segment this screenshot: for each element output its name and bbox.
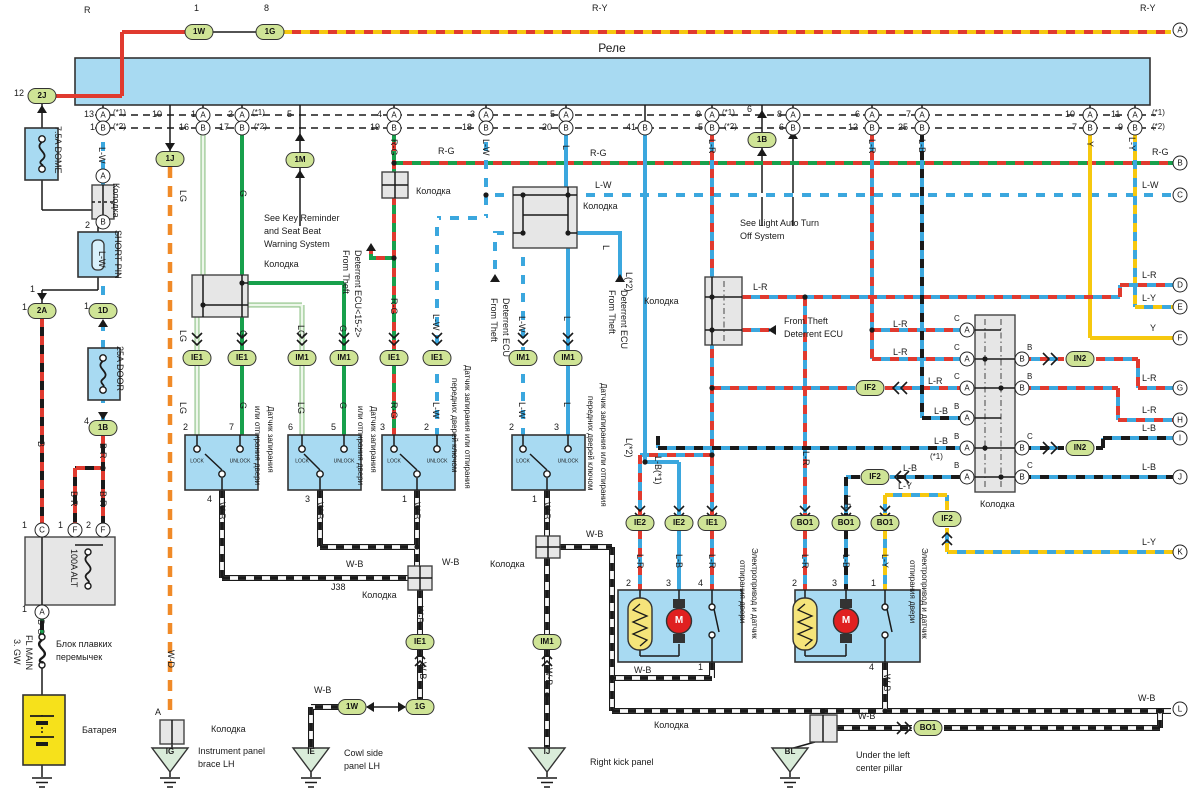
label-3: 3 <box>666 579 671 588</box>
label-25a-door: 25A DOOR <box>115 346 124 391</box>
label-перемычек: перемычек <box>56 653 102 662</box>
label-lock: LOCK <box>190 460 204 465</box>
label-l-r: L-R <box>1142 271 1157 280</box>
label-или-отпирания-двери: или отпирания двери <box>356 406 364 485</box>
label-l-b: L-B <box>903 464 917 473</box>
label-3: 3 <box>305 495 310 504</box>
label-see-light-auto-turn: See Light Auto Turn <box>740 219 819 228</box>
label-r: R <box>84 6 91 15</box>
label-l-w: L-W <box>97 251 106 268</box>
label-l-y: L-Y <box>1142 294 1156 303</box>
label-l-b: L-B <box>841 554 850 568</box>
pin-circle-b: B <box>638 121 653 136</box>
label-l-y: L-Y <box>1142 538 1156 547</box>
pin-circle-a: A <box>35 605 50 620</box>
pin-circle-b: B <box>479 121 494 136</box>
label-1: 1 <box>22 521 27 530</box>
connector-1b: 1B <box>748 132 777 148</box>
label-100a-alt: 100A ALT <box>69 549 78 587</box>
label-2-: (*2) <box>1152 123 1165 131</box>
label-1: 1 <box>402 495 407 504</box>
label-l-w: L-W <box>431 402 440 419</box>
connector-ie1: IE1 <box>183 350 212 366</box>
label-1-: (*1) <box>113 109 126 117</box>
label-8: 8 <box>264 4 269 13</box>
label-6: 6 <box>855 110 860 119</box>
pin-circle-b: B <box>96 215 111 230</box>
label-deterrent-ecu: Deterrent ECU <box>784 330 843 339</box>
label-panel-lh: panel LH <box>344 762 380 771</box>
label-l-w: L-W <box>517 316 526 333</box>
label-r-g: R-G <box>389 402 398 419</box>
connector-bo1: BO1 <box>914 720 943 736</box>
label-1: 1 <box>194 4 199 13</box>
label-lg: LG <box>178 330 187 342</box>
label-w-b: W-B <box>1138 694 1155 703</box>
label-2-: (*2) <box>113 123 126 131</box>
label-and-seat-beat: and Seat Beat <box>264 227 321 236</box>
label-2: 2 <box>183 423 188 432</box>
label-w-b: W-B <box>544 668 553 685</box>
label-1-: (*1) <box>252 109 265 117</box>
label-fl-main: FL MAIN <box>24 635 33 670</box>
connector-ie1: IE1 <box>380 350 409 366</box>
label-g: G <box>238 402 247 409</box>
connector-bo1: BO1 <box>871 515 900 531</box>
label-1: 1 <box>698 663 703 672</box>
label-l-r: L-R <box>1142 406 1157 415</box>
label-w-b: W-B <box>415 606 424 623</box>
label-колодка: Колодка <box>362 591 397 600</box>
label-2-: (*2) <box>254 123 267 131</box>
label-l-w: L-W <box>97 147 106 164</box>
pin-circle-b: B <box>705 121 720 136</box>
label-колодка: Колодка <box>111 183 120 218</box>
label-l-r: L-R <box>928 377 943 386</box>
pin-circle-b: B <box>865 121 880 136</box>
connector-im1: IM1 <box>509 350 538 366</box>
label-deterrent-ecu: Deterrent ECU <box>501 298 510 357</box>
label-7: 7 <box>1072 123 1077 132</box>
pin-circle-a: A <box>960 381 975 396</box>
pin-circle-e: E <box>1173 300 1188 315</box>
connector-1j: 1J <box>156 151 185 167</box>
label-l-r: L-R <box>753 283 768 292</box>
label-6: 6 <box>779 123 784 132</box>
label-center-pillar: center pillar <box>856 764 903 773</box>
label-r-g: R-G <box>590 149 607 158</box>
label-w-b: W-B <box>315 502 324 519</box>
relay-title: Реле <box>598 42 625 54</box>
label-1: 1 <box>532 495 537 504</box>
wiring-diagram-page: Реле R18R-YR-Y12(*1)(*2)13(*1)1(*2)10116… <box>0 0 1200 800</box>
label-l: L <box>562 402 571 407</box>
connector-ie2: IE2 <box>626 515 655 531</box>
label-short-pin: SHORT PIN <box>113 230 122 279</box>
connector-1d: 1D <box>89 303 118 319</box>
label-колодка: Колодка <box>644 297 679 306</box>
label-9: 9 <box>696 110 701 119</box>
label-l-r: L-R <box>707 139 716 154</box>
label-y: Y <box>1085 141 1094 147</box>
label-батарея: Батарея <box>82 726 117 735</box>
label-3: 3 <box>470 110 475 119</box>
connector-im1: IM1 <box>288 350 317 366</box>
label-b: B <box>36 441 45 447</box>
label-y: Y <box>1150 324 1156 333</box>
label-cowl-side: Cowl side <box>344 749 383 758</box>
label-brace-lh: brace LH <box>198 760 235 769</box>
label-передних-дверей-ключом: передних дверей ключом <box>586 396 594 490</box>
label-l-w: L-W <box>481 139 490 156</box>
label-l-r: L-R <box>635 554 644 569</box>
connector-ie1: IE1 <box>698 515 727 531</box>
pin-circle-a: A <box>96 169 111 184</box>
label-m: M <box>675 616 683 626</box>
label-lock: LOCK <box>516 460 530 465</box>
label-w-b: W-B <box>418 662 427 679</box>
pin-circle-a: A <box>960 323 975 338</box>
label-l-b: L-B <box>1142 424 1156 433</box>
label-12: 12 <box>14 89 24 98</box>
label-w-b: W-B <box>586 530 603 539</box>
label-warning-system: Warning System <box>264 240 330 249</box>
label-w-b: W-B <box>634 666 651 675</box>
label-l: L <box>562 316 571 321</box>
connector-im1: IM1 <box>533 634 562 650</box>
connector-bo1: BO1 <box>791 515 820 531</box>
pin-circle-h: H <box>1173 413 1188 428</box>
label-колодка: Колодка <box>416 187 451 196</box>
connector-in2: IN2 <box>1066 351 1095 367</box>
label-16: 16 <box>179 123 189 132</box>
label-датчик-запирания: Датчик запирания <box>266 406 274 473</box>
label-l-r: L-R <box>893 348 908 357</box>
connector-if2: IF2 <box>933 511 962 527</box>
label-9: 9 <box>1118 123 1123 132</box>
label-12: 12 <box>848 123 858 132</box>
connector-ie1: IE1 <box>406 634 435 650</box>
label-c: C <box>954 344 960 352</box>
label-b: B <box>1027 344 1032 352</box>
label-w-b: W-B <box>442 558 459 567</box>
label-колодка: Колодка <box>654 721 689 730</box>
label-b-r: B-R <box>98 443 107 459</box>
label-bl: BL <box>785 748 796 756</box>
label-датчик-запирания-или-отпирания: Датчик запирания или отпирания <box>599 383 607 507</box>
label-see-key-reminder: See Key Reminder <box>264 214 340 223</box>
label-6: 6 <box>747 105 752 114</box>
pin-circle-a: A <box>960 441 975 456</box>
pin-circle-b: B <box>1128 121 1143 136</box>
label-5: 5 <box>698 123 703 132</box>
connector-2j: 2J <box>28 88 57 104</box>
label-2-: (*2) <box>724 123 737 131</box>
pin-circle-b: B <box>96 121 111 136</box>
label-unlock: UNLOCK <box>334 460 355 465</box>
pin-circle-b: B <box>559 121 574 136</box>
label-1-: (*1) <box>1152 109 1165 117</box>
connector-ie1: IE1 <box>423 350 452 366</box>
label-b: B <box>954 403 959 411</box>
label-11: 11 <box>1111 110 1120 119</box>
label-l: L <box>561 145 570 150</box>
label-5: 5 <box>550 110 555 119</box>
label-колодка: Колодка <box>211 725 246 734</box>
label-передних-дверей-ключом: передних дверей ключом <box>450 378 458 472</box>
label-1-: (*1) <box>722 109 735 117</box>
label-l-b: L-B <box>917 139 926 153</box>
label-l-2-: L(*2) <box>624 272 633 292</box>
label-отпирания-двери: отпирания двери <box>908 560 916 623</box>
label-2: 2 <box>424 423 429 432</box>
label-l: L <box>601 245 610 250</box>
label-w-b: W-B <box>217 502 226 519</box>
label-7-5a-dome: 7.5A DOME <box>53 126 62 174</box>
label-c: C <box>954 315 960 323</box>
label-l-b-1-: L-B(*1) <box>653 456 662 485</box>
pin-circle-b: B <box>1015 441 1030 456</box>
label-j38: J38 <box>331 583 346 592</box>
label-8: 8 <box>777 110 782 119</box>
connector-im1: IM1 <box>554 350 583 366</box>
diagram-text-layer: Реле R18R-YR-Y12(*1)(*2)13(*1)1(*2)10116… <box>0 0 1200 800</box>
label-колодка: Колодка <box>490 560 525 569</box>
label-w-b: W-B <box>882 674 891 691</box>
label-c: C <box>1027 433 1033 441</box>
label-или-отпирания-двери: или отпирания двери <box>253 406 261 485</box>
label-c: C <box>1027 462 1033 470</box>
pin-circle-b: B <box>915 121 930 136</box>
label-7: 7 <box>229 423 234 432</box>
pin-circle-b: B <box>196 121 211 136</box>
label-l-y: L-Y <box>880 554 889 568</box>
label-b: B <box>954 462 959 470</box>
label-lg: LG <box>296 325 305 337</box>
label-b-g: B-G <box>36 619 45 635</box>
label-l-r: L-R <box>801 451 810 466</box>
pin-circle-b: B <box>1015 352 1030 367</box>
label-5: 5 <box>331 423 336 432</box>
label-b: B <box>954 433 959 441</box>
connector-im1: IM1 <box>330 350 359 366</box>
pin-circle-a: A <box>960 411 975 426</box>
label-from-theft: From Theft <box>489 298 498 342</box>
pin-circle-c: C <box>1173 188 1188 203</box>
label-10: 10 <box>152 110 162 119</box>
label-lg: LG <box>178 402 187 414</box>
label-l-r: L-R <box>1142 374 1157 383</box>
label-l-b: L-B <box>1142 463 1156 472</box>
label-from-theft: From Theft <box>341 250 350 294</box>
label-l-w: L-W <box>1142 181 1159 190</box>
connector-1g: 1G <box>256 24 285 40</box>
label-1: 1 <box>90 123 95 132</box>
label-deterrent-ecu: Deterrent ECU <box>619 290 628 349</box>
label-deterrent-ecu-15-2-: Deterrent ECU<15-2> <box>353 250 362 338</box>
label-g: G <box>338 325 347 332</box>
label-l-w: L-W <box>595 181 612 190</box>
pin-circle-b: B <box>1083 121 1098 136</box>
label-колодка: Колодка <box>264 260 299 269</box>
label-20: 20 <box>542 123 552 132</box>
label-3-gw: 3. GW <box>12 639 21 665</box>
pin-circle-l: L <box>1173 702 1188 717</box>
label-2: 2 <box>509 423 514 432</box>
label-l-r: L-R <box>707 554 716 569</box>
pin-circle-a: A <box>960 470 975 485</box>
connector-bo1: BO1 <box>832 515 861 531</box>
pin-circle-a: A <box>1173 23 1188 38</box>
pin-circle-a: A <box>960 352 975 367</box>
label-1: 1 <box>22 303 27 312</box>
label-l-2-: L(*2) <box>624 438 633 458</box>
pin-circle-k: K <box>1173 545 1188 560</box>
label-датчик-запирания: Датчик запирания <box>369 406 377 473</box>
label-l-w: L-W <box>431 314 440 331</box>
pin-circle-i: I <box>1173 431 1188 446</box>
label-1: 1 <box>58 521 63 530</box>
label-unlock: UNLOCK <box>427 460 448 465</box>
pin-circle-j: J <box>1173 470 1188 485</box>
label-1: 1 <box>871 579 876 588</box>
label-c: C <box>954 373 960 381</box>
connector-ie1: IE1 <box>228 350 257 366</box>
label-13: 13 <box>84 110 94 119</box>
label-g: G <box>238 330 247 337</box>
label-l-r: L-R <box>893 320 908 329</box>
label-g: G <box>338 402 347 409</box>
label-lg: LG <box>296 402 305 414</box>
label-колодка: Колодка <box>583 202 618 211</box>
label-lock: LOCK <box>295 460 309 465</box>
label-2: 2 <box>85 221 90 230</box>
label-17: 17 <box>219 123 229 132</box>
label-2: 2 <box>792 579 797 588</box>
label-3: 3 <box>832 579 837 588</box>
label-2: 2 <box>626 579 631 588</box>
label-l-y: L-Y <box>1127 137 1136 151</box>
label-6: 6 <box>288 423 293 432</box>
label-l-b: L-B <box>674 554 683 568</box>
pin-circle-c: C <box>35 523 50 538</box>
label-w-d: W-D <box>166 650 175 668</box>
label-3: 3 <box>554 423 559 432</box>
label-2: 2 <box>86 521 91 530</box>
label-2: 2 <box>228 110 233 119</box>
label-instrument-panel: Instrument panel <box>198 747 265 756</box>
label-b: B <box>1027 373 1032 381</box>
label-ig: IG <box>166 748 174 756</box>
label-колодка: Колодка <box>980 500 1015 509</box>
label-m: M <box>842 616 850 626</box>
label-4: 4 <box>207 495 212 504</box>
label-l-y: L-Y <box>898 482 912 491</box>
label-b-r: B-R <box>98 491 107 507</box>
label-b-r: B-R <box>69 491 78 507</box>
label-l-b: L-B <box>934 437 948 446</box>
pin-circle-b: B <box>235 121 250 136</box>
label-18: 18 <box>462 123 472 132</box>
pin-circle-b: B <box>1015 470 1030 485</box>
label-unlock: UNLOCK <box>558 460 579 465</box>
label-w-b: W-B <box>858 712 875 721</box>
label-off-system: Off System <box>740 232 784 241</box>
connector-1b: 1B <box>89 420 118 436</box>
label-from-theft: From Theft <box>784 317 828 326</box>
label-from-theft: From Theft <box>607 290 616 334</box>
pin-circle-g: G <box>1173 381 1188 396</box>
label-4: 4 <box>698 579 703 588</box>
connector-1g: 1G <box>406 699 435 715</box>
label-25: 25 <box>898 123 908 132</box>
label-41: 41 <box>626 123 636 132</box>
connector-ie2: IE2 <box>665 515 694 531</box>
label-w-b: W-B <box>314 686 331 695</box>
label-l-r: L-R <box>867 139 876 154</box>
pin-circle-b: B <box>786 121 801 136</box>
label-1: 1 <box>30 285 35 294</box>
label-r-g: R-G <box>389 139 398 156</box>
pin-circle-b: B <box>1015 381 1030 396</box>
label-l-r: L-R <box>800 554 809 569</box>
label-датчик-запирания-или-отпирания: Датчик запирания или отпирания <box>463 365 471 489</box>
pin-circle-f: F <box>1173 331 1188 346</box>
connector-1w: 1W <box>338 699 367 715</box>
label-10: 10 <box>1065 110 1075 119</box>
pin-circle-d: D <box>1173 278 1188 293</box>
label-under-the-left: Under the left <box>856 751 910 760</box>
label-19: 19 <box>370 123 380 132</box>
label-a: A <box>155 708 161 717</box>
label-lg: LG <box>178 190 187 202</box>
label-l-b: L-B <box>842 495 851 509</box>
connector-1m: 1M <box>286 152 315 168</box>
label-ij: IJ <box>544 748 551 756</box>
connector-if2: IF2 <box>861 469 890 485</box>
label-электропривод-и-датчик: Электропривод и датчик <box>750 548 758 639</box>
pin-circle-b: B <box>1173 156 1188 171</box>
label-r-g: R-G <box>389 298 398 315</box>
label-unlock: UNLOCK <box>230 460 251 465</box>
connector-2a: 2A <box>28 303 57 319</box>
label-r-g: R-G <box>438 147 455 156</box>
label-lock: LOCK <box>387 460 401 465</box>
label-отпирания-двери: отпирания двери <box>738 560 746 623</box>
label-w-b: W-B <box>346 560 363 569</box>
label-right-kick-panel: Right kick panel <box>590 758 654 767</box>
label-l-b: L-B <box>934 407 948 416</box>
label-r-g: R-G <box>1152 148 1169 157</box>
label-r-y: R-Y <box>1140 4 1156 13</box>
label-5: 5 <box>287 110 292 119</box>
label-w-b: W-B <box>542 502 551 519</box>
pin-circle-b: B <box>387 121 402 136</box>
label-7: 7 <box>906 110 911 119</box>
connector-in2: IN2 <box>1066 440 1095 456</box>
label-l-w: L-W <box>517 402 526 419</box>
connector-1w: 1W <box>185 24 214 40</box>
connector-if2: IF2 <box>856 380 885 396</box>
label-блок-плавких: Блок плавких <box>56 640 112 649</box>
label-4: 4 <box>869 663 874 672</box>
label-g: G <box>238 190 247 197</box>
label-1-: (*1) <box>930 453 943 461</box>
label-1: 1 <box>22 605 27 614</box>
pin-circle-f: F <box>68 523 83 538</box>
label-r-y: R-Y <box>592 4 608 13</box>
label-электропривод-и-датчик: Электропривод и датчик <box>920 548 928 639</box>
